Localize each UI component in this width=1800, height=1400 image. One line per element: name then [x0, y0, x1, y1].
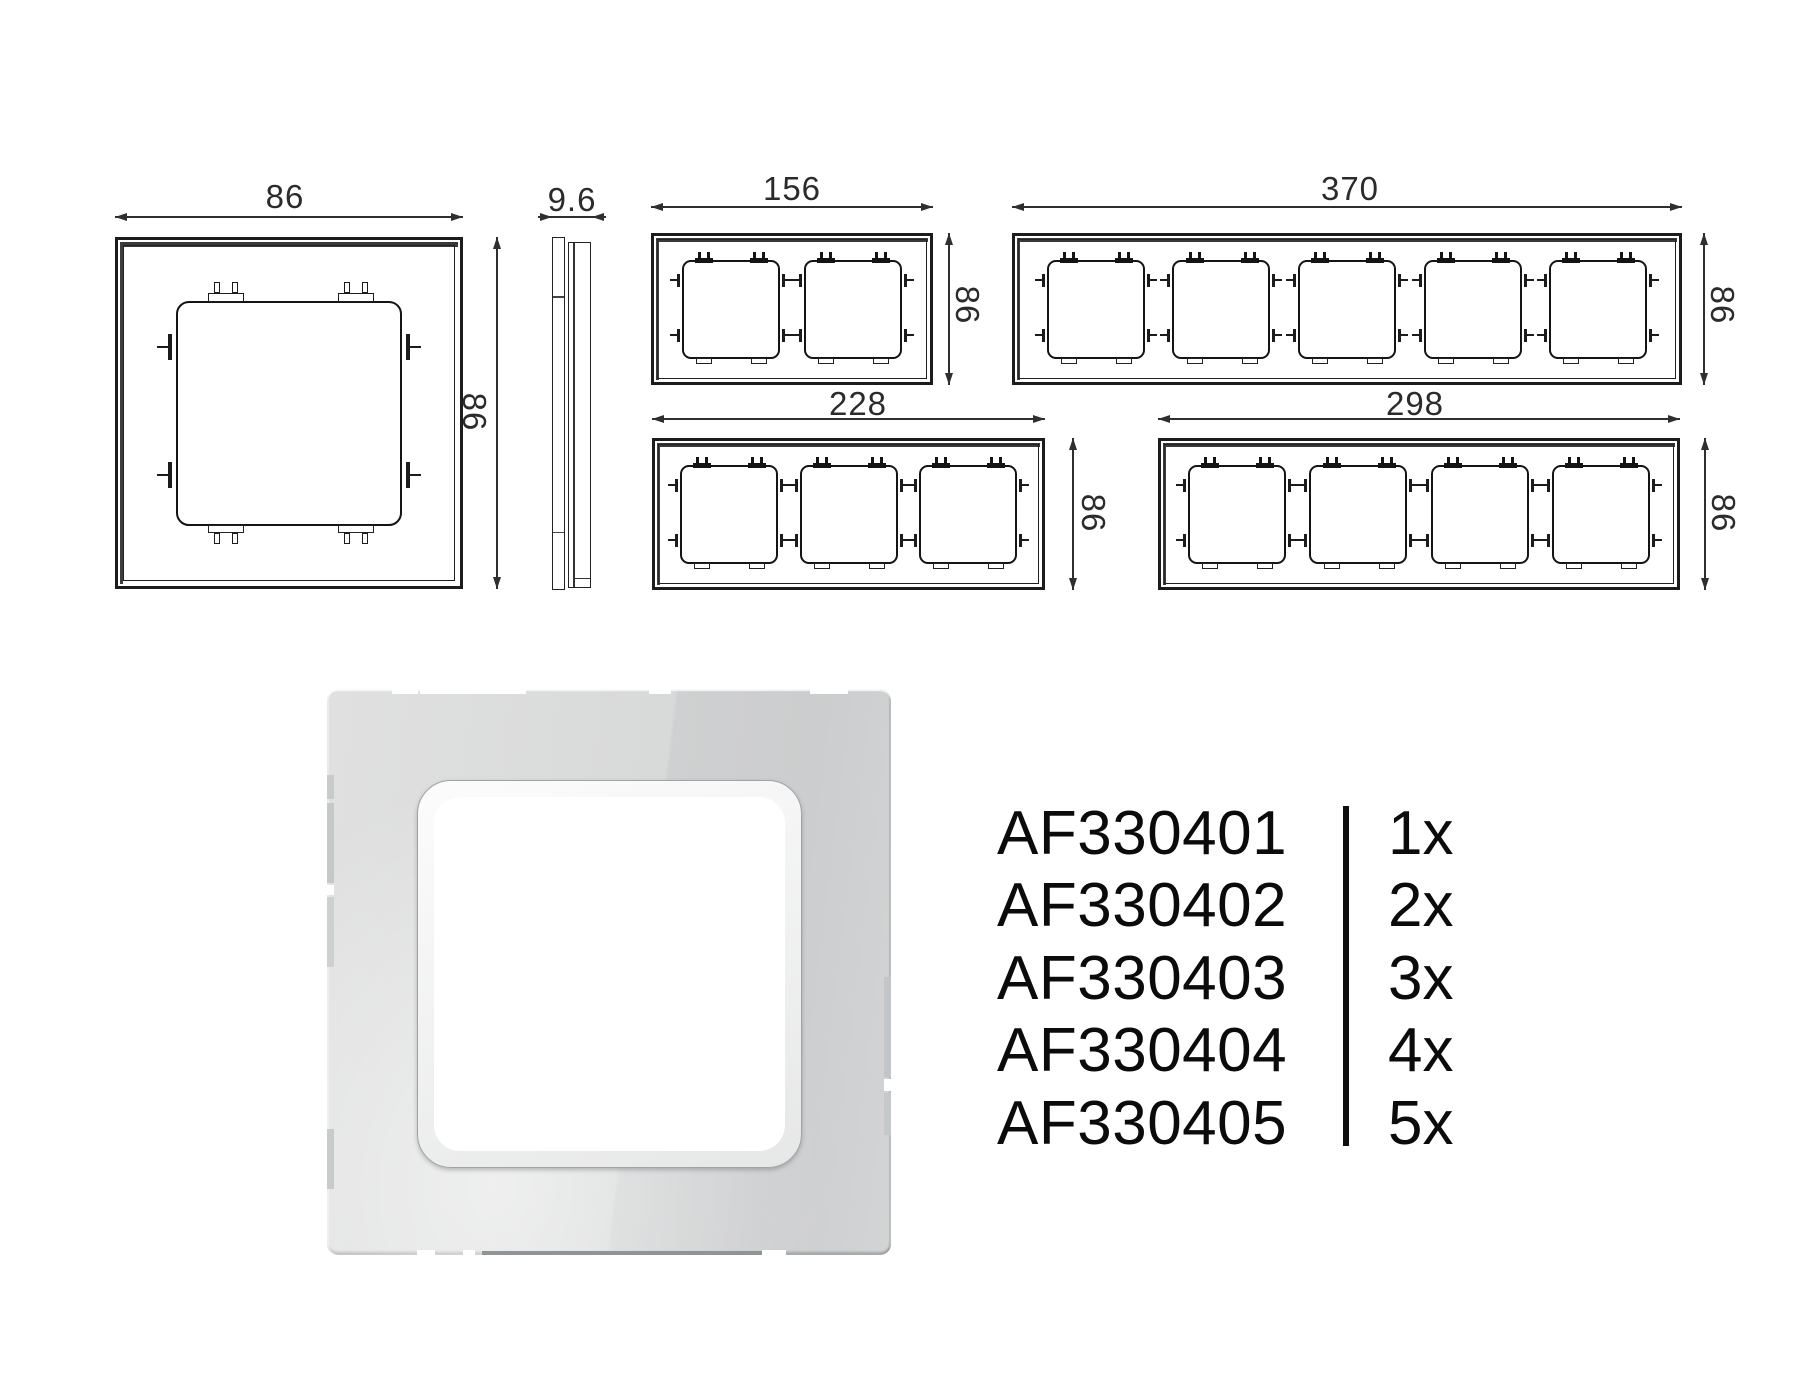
dim-height-label: 86	[1074, 494, 1112, 533]
mount-clip-bottom	[338, 525, 374, 533]
mount-clip-bottom	[818, 358, 834, 364]
mount-clip-top	[693, 463, 711, 468]
photo-edge-shadow	[482, 1251, 764, 1255]
mount-clip-top	[868, 463, 886, 468]
side-pin	[904, 329, 907, 342]
profile-front-plate	[552, 237, 565, 590]
side-pin	[1288, 479, 1291, 492]
mount-clip-bottom	[694, 563, 710, 569]
product-table: AF3304011xAF3304022xAF3304033xAF3304044x…	[997, 797, 1597, 1160]
dim-width-label: 370	[1321, 170, 1379, 208]
mount-clip-bottom	[873, 358, 889, 364]
side-pin	[1652, 479, 1655, 492]
mount-clip-top	[1256, 463, 1274, 468]
dim-width-label: 228	[829, 385, 887, 423]
side-pin	[799, 329, 802, 342]
side-pin	[168, 334, 172, 360]
module-opening	[682, 260, 780, 359]
side-pin	[1019, 479, 1022, 492]
mount-clip-bottom	[988, 563, 1004, 569]
product-code: AF330404	[997, 1015, 1377, 1086]
product-code: AF330401	[997, 798, 1377, 869]
mount-clip-top	[1565, 463, 1583, 468]
dim-width-label: 156	[763, 170, 821, 208]
side-pin	[795, 534, 798, 547]
spec-sheet: 9.6 AF3304011xAF3304022xAF3304033xAF3304…	[0, 0, 1800, 1400]
side-pin	[1649, 274, 1652, 287]
mount-clip-top	[1499, 463, 1517, 468]
side-pin	[1293, 329, 1296, 342]
module-opening	[680, 465, 778, 564]
mount-clip-bottom	[869, 563, 885, 569]
side-pin	[1547, 534, 1550, 547]
mount-clip-top	[1437, 258, 1455, 263]
photo-edge-highlight	[420, 689, 526, 694]
mount-clip-bottom	[1257, 563, 1273, 569]
module-opening	[1188, 465, 1286, 564]
mount-clip-top	[1562, 258, 1580, 263]
side-pin	[782, 329, 785, 342]
side-pin	[675, 479, 678, 492]
mount-clip-bottom	[814, 563, 830, 569]
side-pin	[406, 334, 410, 360]
table-row: AF3304011x	[997, 797, 1597, 870]
module-opening	[1549, 260, 1647, 359]
product-qty: 1x	[1388, 798, 1453, 869]
frame-side-profile-drawing	[552, 237, 592, 590]
dim-height-label: 86	[455, 393, 493, 432]
side-pin	[1304, 534, 1307, 547]
side-pin	[1649, 329, 1652, 342]
module-opening	[1298, 260, 1396, 359]
mount-clip-top	[932, 463, 950, 468]
side-pin	[1398, 329, 1401, 342]
mount-clip-bottom	[1187, 358, 1203, 364]
mount-clip-bottom	[1438, 358, 1454, 364]
side-pin	[1419, 329, 1422, 342]
side-pin	[1147, 274, 1150, 287]
product-code: AF330403	[997, 943, 1377, 1014]
mount-clip-top	[1241, 258, 1259, 263]
side-pin	[1547, 479, 1550, 492]
side-pin	[406, 462, 410, 488]
module-opening	[1047, 260, 1145, 359]
side-pin	[1167, 329, 1170, 342]
mount-clip-bottom	[1379, 563, 1395, 569]
side-pin	[780, 479, 783, 492]
product-qty: 4x	[1388, 1015, 1453, 1086]
module-opening	[1424, 260, 1522, 359]
mount-clip-bottom	[1202, 563, 1218, 569]
side-pin	[1042, 329, 1045, 342]
mount-clip-bottom	[1566, 563, 1582, 569]
side-pin	[677, 329, 680, 342]
side-pin	[1147, 329, 1150, 342]
depth-dimension-label: 9.6	[548, 181, 597, 219]
dim-width-label: 86	[266, 178, 305, 216]
mount-clip-top	[1366, 258, 1384, 263]
mount-clip-top	[817, 258, 835, 263]
mount-clip-bottom	[1116, 358, 1132, 364]
mount-clip-bottom	[1618, 358, 1634, 364]
side-pin	[914, 479, 917, 492]
mount-clip-bottom	[1324, 563, 1340, 569]
frame-4gang-drawing	[1158, 438, 1680, 590]
side-pin	[1288, 534, 1291, 547]
photo-edge-highlight	[327, 885, 334, 895]
side-pin	[904, 274, 907, 287]
mount-clip-top	[748, 463, 766, 468]
module-opening	[1431, 465, 1529, 564]
side-pin	[1531, 479, 1534, 492]
mount-clip-top	[1311, 258, 1329, 263]
side-pin	[168, 462, 172, 488]
product-qty: 2x	[1388, 870, 1453, 941]
mount-clip-bottom	[1445, 563, 1461, 569]
photo-edge-highlight	[417, 1250, 435, 1255]
dim-height-label: 86	[1703, 286, 1741, 325]
mount-clip-top	[1201, 463, 1219, 468]
mount-clip-top	[872, 258, 890, 263]
side-pin	[1398, 274, 1401, 287]
photo-side-clip-mark	[884, 977, 891, 1077]
photo-side-clip-mark	[327, 803, 334, 883]
side-pin	[1544, 274, 1547, 287]
photo-side-clip-mark	[327, 775, 334, 799]
side-pin	[1531, 534, 1534, 547]
mount-clip-top	[750, 258, 768, 263]
side-pin	[1524, 274, 1527, 287]
mount-clip-top	[1444, 463, 1462, 468]
frame-1gang-drawing	[115, 237, 463, 589]
side-pin	[795, 479, 798, 492]
mount-clip-top	[695, 258, 713, 263]
side-pin	[1544, 329, 1547, 342]
mount-clip-top	[338, 293, 374, 302]
module-opening	[1552, 465, 1650, 564]
side-pin	[1183, 534, 1186, 547]
mount-clip-top	[1492, 258, 1510, 263]
frame-3gang-drawing	[652, 438, 1045, 590]
side-pin	[900, 534, 903, 547]
mount-clip-bottom	[1367, 358, 1383, 364]
mount-clip-top	[813, 463, 831, 468]
side-pin	[1409, 534, 1412, 547]
mount-clip-bottom	[1312, 358, 1328, 364]
module-opening	[800, 465, 898, 564]
module-opening	[176, 301, 402, 526]
table-row: AF3304044x	[997, 1015, 1597, 1088]
side-pin	[1426, 534, 1429, 547]
photo-side-clip-mark	[884, 1093, 891, 1135]
side-pin	[900, 479, 903, 492]
table-row: AF3304022x	[997, 870, 1597, 943]
side-pin	[1183, 479, 1186, 492]
side-pin	[677, 274, 680, 287]
mount-clip-bottom	[1621, 563, 1637, 569]
mount-clip-bottom	[749, 563, 765, 569]
table-row: AF3304033x	[997, 942, 1597, 1015]
product-qty: 5x	[1388, 1088, 1453, 1159]
side-pin	[1524, 329, 1527, 342]
side-pin	[1419, 274, 1422, 287]
mount-clip-top	[1378, 463, 1396, 468]
mount-clip-bottom	[1493, 358, 1509, 364]
frame-5gang-drawing	[1012, 233, 1682, 385]
mount-clip-top	[987, 463, 1005, 468]
side-pin	[780, 534, 783, 547]
mount-clip-top	[1186, 258, 1204, 263]
side-pin	[1304, 479, 1307, 492]
side-pin	[1426, 479, 1429, 492]
module-opening	[804, 260, 902, 359]
side-pin	[1042, 274, 1045, 287]
photo-edge-highlight	[463, 1250, 475, 1255]
dim-height-label: 86	[1704, 494, 1742, 533]
product-qty: 3x	[1388, 943, 1453, 1014]
photo-side-clip-mark	[327, 1129, 334, 1189]
frame-2gang-drawing	[651, 233, 933, 385]
side-pin	[799, 274, 802, 287]
mount-clip-bottom	[751, 358, 767, 364]
product-code: AF330402	[997, 870, 1377, 941]
mount-clip-top	[1115, 258, 1133, 263]
mount-clip-bottom	[696, 358, 712, 364]
mount-clip-top	[1060, 258, 1078, 263]
module-opening	[1172, 260, 1270, 359]
table-row: AF3304055x	[997, 1087, 1597, 1160]
side-pin	[782, 274, 785, 287]
profile-back-plate	[568, 242, 591, 588]
mount-clip-bottom	[1242, 358, 1258, 364]
photo-inner-ring	[417, 780, 802, 1168]
side-pin	[914, 534, 917, 547]
side-pin	[675, 534, 678, 547]
photo-edge-highlight	[884, 1079, 891, 1091]
photo-opening	[434, 797, 785, 1151]
side-pin	[1272, 329, 1275, 342]
photo-edge-highlight	[649, 689, 671, 694]
product-photo	[327, 689, 891, 1255]
side-pin	[1019, 534, 1022, 547]
module-opening	[919, 465, 1017, 564]
mount-clip-top	[1617, 258, 1635, 263]
side-pin	[1293, 274, 1296, 287]
dim-width-line	[115, 216, 463, 218]
dim-width-label: 298	[1386, 385, 1444, 423]
mount-clip-top	[208, 293, 244, 302]
photo-edge-highlight	[810, 689, 848, 694]
side-pin	[1167, 274, 1170, 287]
dim-height-line	[496, 237, 498, 589]
dim-height-label: 86	[948, 286, 986, 325]
mount-clip-bottom	[933, 563, 949, 569]
mount-clip-bottom	[1061, 358, 1077, 364]
photo-edge-highlight	[392, 689, 418, 694]
mount-clip-bottom	[208, 525, 244, 533]
photo-edge-highlight	[762, 1250, 786, 1255]
product-code: AF330405	[997, 1088, 1377, 1159]
side-pin	[1652, 534, 1655, 547]
module-opening	[1309, 465, 1407, 564]
mount-clip-top	[1620, 463, 1638, 468]
mount-clip-bottom	[1563, 358, 1579, 364]
side-pin	[1272, 274, 1275, 287]
side-pin	[1409, 479, 1412, 492]
photo-side-clip-mark	[327, 897, 334, 967]
mount-clip-bottom	[1500, 563, 1516, 569]
mount-clip-top	[1323, 463, 1341, 468]
